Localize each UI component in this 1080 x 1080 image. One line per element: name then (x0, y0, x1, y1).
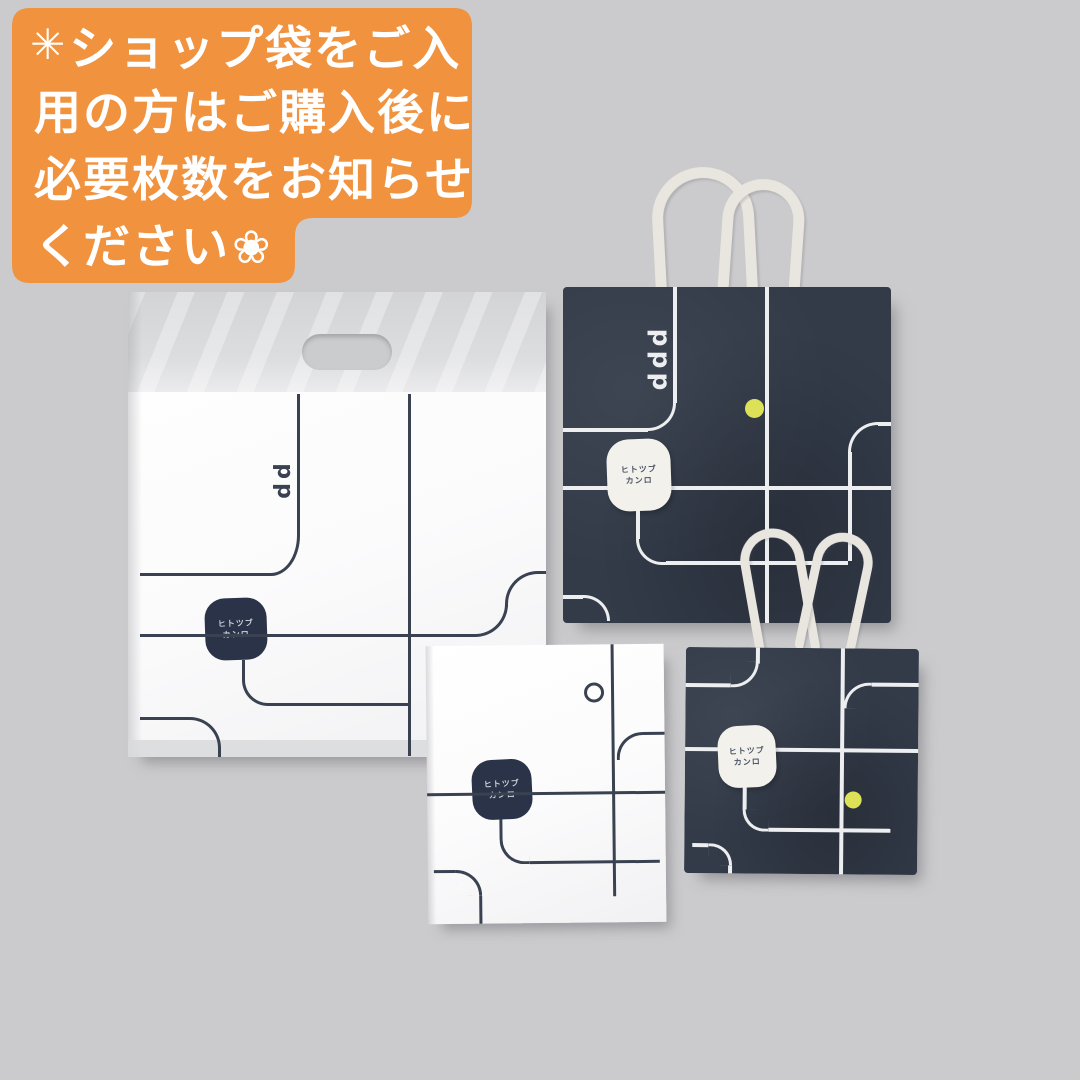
pattern-corner (456, 870, 482, 896)
pattern-line (434, 870, 456, 873)
pattern-line (673, 287, 677, 403)
pattern-line (563, 595, 583, 599)
pattern-line (218, 748, 221, 757)
pattern-corner (583, 595, 610, 621)
yellow-dot (745, 399, 764, 418)
pattern-line (140, 717, 190, 720)
pattern-corner (708, 843, 732, 865)
pattern-line (140, 634, 475, 637)
pattern-line (692, 843, 708, 847)
pattern-line (242, 660, 245, 680)
pattern-line (611, 644, 617, 896)
pattern-line (728, 865, 732, 873)
pattern-corner (742, 809, 768, 831)
pattern-corner (848, 422, 878, 452)
brand-label-chip: ヒトツブ カンロ (717, 724, 778, 788)
brand-label-line1: ヒトツブ (218, 619, 254, 628)
pattern-corner (271, 520, 300, 576)
paper-bag-handle (717, 176, 807, 303)
flower-icon: ❀ (232, 220, 273, 274)
brand-label-line1: ヒトツブ (484, 779, 520, 789)
brand-label-line2: カンロ (626, 476, 653, 485)
pattern-corner (475, 604, 508, 637)
notice-line-2: 用の方はご購入後に (34, 90, 475, 137)
circle-motif (584, 682, 604, 702)
brand-label-chip: ヒトツブ カンロ (204, 597, 268, 661)
dd-motif: dd (273, 459, 295, 499)
product-photo: dd ヒトツブ カンロ ddd (0, 0, 1080, 1080)
pattern-corner (616, 732, 642, 760)
notice-line-4: ください❀ (34, 224, 273, 271)
pattern-corner (500, 839, 530, 864)
pattern-line (686, 683, 731, 687)
pattern-line (636, 511, 640, 539)
pattern-corner (505, 571, 546, 607)
notice-banner: ✳ショップ袋をご入 用の方はご購入後に 必要枚数をお知らせ ください❀ (0, 0, 480, 292)
sparkle-icon: ✳ (30, 20, 67, 69)
plastic-bag-top-band (128, 292, 546, 392)
pattern-corner (731, 661, 759, 687)
pattern-line (140, 573, 271, 576)
yellow-dot (845, 791, 862, 808)
pattern-line (743, 787, 747, 809)
brand-label-line1: ヒトツブ (729, 746, 765, 756)
pattern-line (408, 394, 411, 756)
notice-line-1-text: ショップ袋をご入 (69, 22, 461, 77)
pattern-line (563, 428, 648, 432)
pattern-line (530, 860, 660, 864)
notice-line-4-text: ください (34, 220, 230, 275)
brand-label-chip: ヒトツブ カンロ (471, 758, 534, 821)
small-white-paper-bag: ヒトツブ カンロ (426, 644, 667, 924)
pattern-line (642, 732, 664, 735)
pattern-corner (648, 403, 676, 431)
small-navy-paper-bag: ヒトツブ カンロ (684, 647, 919, 875)
pattern-line (872, 683, 919, 687)
pattern-line (768, 828, 890, 833)
pattern-corner (190, 717, 221, 748)
pattern-corner (843, 682, 871, 708)
pattern-corner (636, 539, 666, 565)
pattern-line (839, 648, 844, 874)
ddd-motif: ddd (645, 325, 670, 391)
brand-label-line1: ヒトツブ (621, 465, 657, 474)
pattern-line (878, 422, 891, 426)
pattern-line (297, 394, 300, 520)
pattern-line (427, 791, 665, 796)
brand-label-line2: カンロ (734, 757, 761, 766)
pattern-line (273, 703, 411, 706)
plastic-left-fold (128, 292, 142, 757)
pattern-corner (242, 680, 273, 706)
pattern-line (479, 896, 482, 924)
notice-line-3: 必要枚数をお知らせ (34, 157, 474, 204)
pattern-line (499, 819, 502, 839)
handle-cutout (302, 334, 392, 370)
notice-line-1: ✳ショップ袋をご入 (30, 24, 461, 73)
white-bag-left-fold (426, 646, 437, 924)
brand-label-chip: ヒトツブ カンロ (606, 438, 672, 512)
